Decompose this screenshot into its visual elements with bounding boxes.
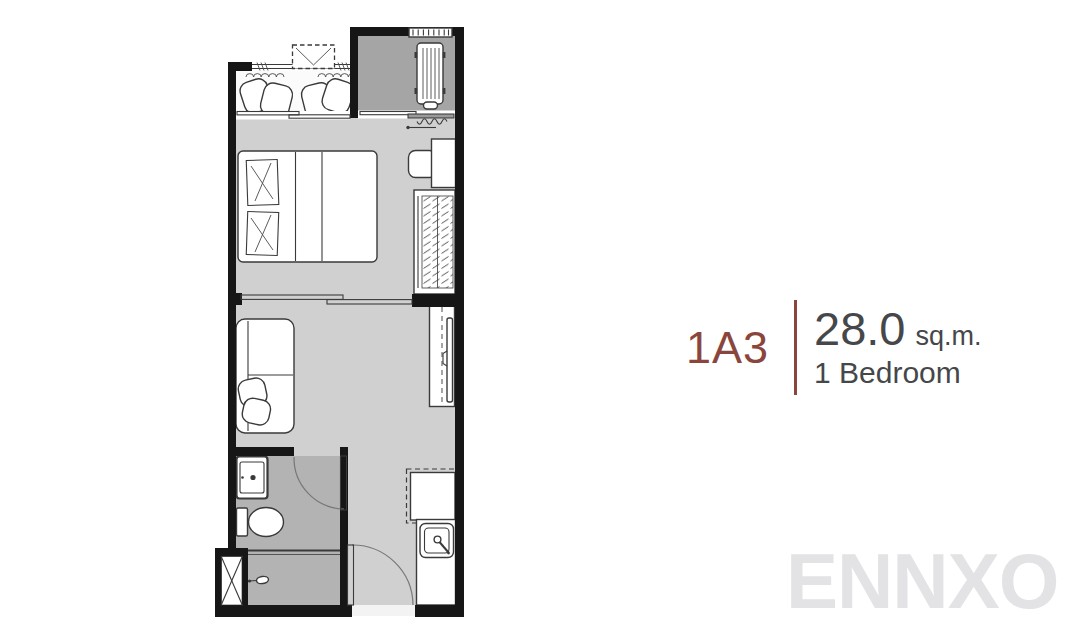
kitchen-sink: [420, 524, 454, 558]
unit-area: 28.0 sq.m.: [814, 301, 982, 356]
condenser-unit: [293, 45, 335, 69]
ac-unit: [415, 43, 446, 109]
wall-bottom-left: [215, 605, 352, 617]
entrance-threshold: [352, 605, 415, 616]
sofa: [236, 319, 294, 433]
unit-area-value: 28.0: [814, 301, 905, 356]
bed-mattress: [238, 151, 377, 262]
balcony-sliding-door: [236, 111, 350, 120]
wall-bottom-right: [415, 605, 464, 617]
wall-bathroom-top: [228, 447, 294, 456]
tv-console: [430, 303, 455, 407]
vanity-sink: [237, 457, 268, 499]
wall-partition-stub: [228, 293, 242, 305]
toilet: [237, 508, 284, 537]
unit-bedrooms-label: 1 Bedroom: [814, 356, 961, 390]
ac-unit-cap: [424, 102, 438, 109]
unit-code-label: 1A3: [686, 322, 769, 374]
desk: [432, 139, 456, 188]
pipe-shaft: [221, 556, 243, 606]
wall-right: [455, 27, 464, 617]
bedroom-sliding-door: [241, 293, 412, 306]
floor-plan-page: 1A3 28.0 sq.m. 1 Bedroom ENNXO: [0, 0, 1080, 640]
refrigerator: [407, 469, 458, 523]
tv: [447, 318, 453, 402]
vent-louver: [409, 28, 452, 37]
wall-left: [228, 62, 236, 550]
wall-balcony-divider: [350, 27, 358, 118]
label-divider-line: [794, 300, 797, 395]
double-bed: [238, 151, 377, 262]
watermark-text: ENNXO: [786, 536, 1058, 627]
ac-ledge-window: [358, 111, 455, 119]
wall-partition-right: [412, 294, 455, 307]
unit-area-unit: sq.m.: [915, 321, 981, 352]
wardrobe: [414, 190, 455, 294]
